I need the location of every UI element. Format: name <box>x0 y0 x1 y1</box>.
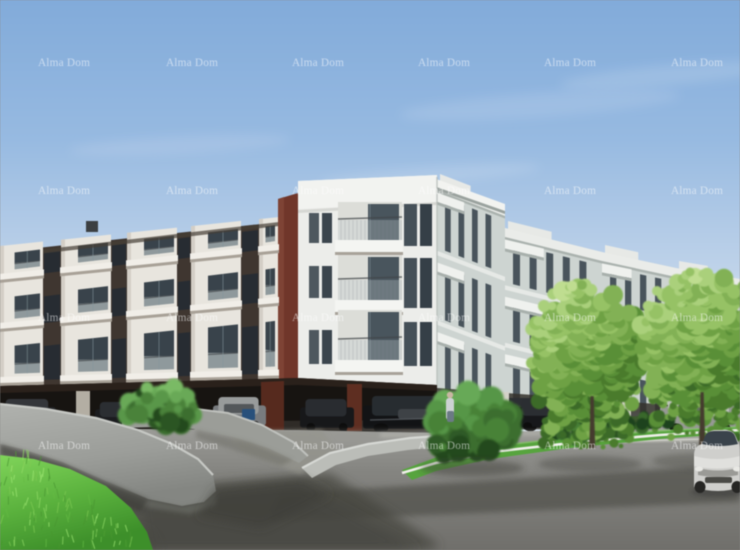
svg-text:Alma Dom: Alma Dom <box>292 57 344 69</box>
svg-text:Alma Dom: Alma Dom <box>544 312 596 324</box>
svg-text:Alma Dom: Alma Dom <box>38 57 90 69</box>
svg-text:Alma Dom: Alma Dom <box>671 57 723 69</box>
svg-text:Alma Dom: Alma Dom <box>166 185 218 197</box>
svg-text:Alma Dom: Alma Dom <box>292 312 344 324</box>
svg-text:Alma Dom: Alma Dom <box>418 312 470 324</box>
svg-text:Alma Dom: Alma Dom <box>38 185 90 197</box>
svg-text:Alma Dom: Alma Dom <box>166 312 218 324</box>
svg-text:Alma Dom: Alma Dom <box>166 57 218 69</box>
svg-text:Alma Dom: Alma Dom <box>544 185 596 197</box>
svg-text:Alma Dom: Alma Dom <box>292 440 344 452</box>
svg-text:Alma Dom: Alma Dom <box>418 440 470 452</box>
svg-text:Alma Dom: Alma Dom <box>671 440 723 452</box>
svg-text:Alma Dom: Alma Dom <box>418 185 470 197</box>
svg-text:Alma Dom: Alma Dom <box>38 440 90 452</box>
svg-text:Alma Dom: Alma Dom <box>671 185 723 197</box>
svg-text:Alma Dom: Alma Dom <box>292 185 344 197</box>
svg-text:Alma Dom: Alma Dom <box>38 312 90 324</box>
svg-text:Alma Dom: Alma Dom <box>418 57 470 69</box>
svg-text:Alma Dom: Alma Dom <box>166 440 218 452</box>
svg-text:Alma Dom: Alma Dom <box>544 440 596 452</box>
svg-text:Alma Dom: Alma Dom <box>544 57 596 69</box>
svg-text:Alma Dom: Alma Dom <box>671 312 723 324</box>
